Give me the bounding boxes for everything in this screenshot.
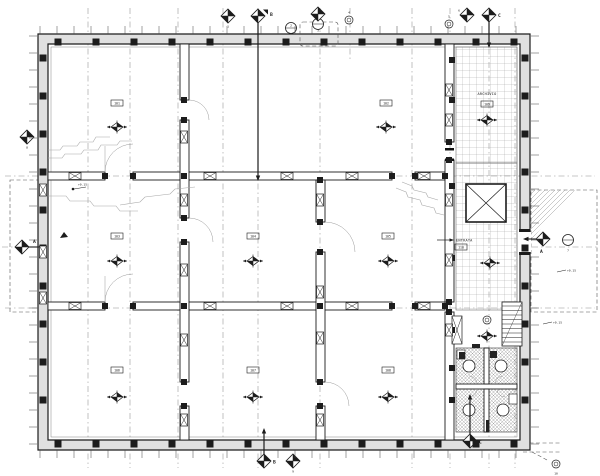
wall-cap [181, 303, 187, 309]
pilaster [131, 441, 138, 448]
level-marker-icon [107, 255, 127, 268]
pilaster [283, 441, 290, 448]
pilaster [397, 39, 404, 46]
wall-cap [446, 157, 452, 163]
wall-cap [181, 215, 187, 221]
wall-cap [442, 173, 448, 179]
grid-bubble-icon [345, 16, 353, 24]
pilaster [40, 93, 47, 100]
floor-plan-drawing: 101 102 103 104 105 106 107 108 109 110 … [0, 0, 600, 476]
pilaster [359, 39, 366, 46]
pilaster [522, 131, 529, 138]
interior-walls [48, 44, 454, 440]
room-number: 104 [250, 235, 256, 239]
pilaster [40, 55, 47, 62]
pilaster [511, 39, 518, 46]
pilaster [321, 39, 328, 46]
jamb [519, 229, 530, 232]
section-flag-icon [263, 10, 268, 15]
wall-cap [446, 309, 452, 315]
wall-cap [130, 303, 136, 309]
pilaster [435, 39, 442, 46]
pilaster [55, 39, 62, 46]
section-bubble-icon [15, 240, 29, 254]
wall-cap [181, 117, 187, 123]
pilaster [511, 441, 518, 448]
grid-bubble-label: 6 [458, 9, 460, 13]
leader-dot [72, 188, 75, 191]
spot-level: +0.15 [78, 183, 87, 187]
level-marker-icon [376, 121, 396, 134]
grid-bubble-label: 7 [567, 249, 569, 253]
bath-partition [456, 384, 517, 389]
section-letter: C [498, 13, 501, 19]
pilaster [93, 441, 100, 448]
grid-bubble-label: 10 [554, 472, 558, 476]
entry-arrow: ENTRATA [437, 238, 473, 242]
pilaster [245, 39, 252, 46]
pilaster [522, 283, 529, 290]
pilaster [40, 207, 47, 214]
dark-fixture [490, 351, 497, 358]
pilaster [522, 321, 529, 328]
pilaster [321, 441, 328, 448]
grid-bubble-icon [552, 460, 560, 468]
door-swing-wedge [60, 232, 68, 238]
wc-fixture [463, 404, 475, 416]
pilaster [207, 441, 214, 448]
pilaster [93, 39, 100, 46]
wall-end-caps [102, 57, 455, 409]
pilaster [522, 359, 529, 366]
wall-cap [449, 365, 455, 371]
pilaster [169, 441, 176, 448]
wall-cap [317, 249, 323, 255]
pilaster [473, 441, 480, 448]
grid-bubble-label: 9 [292, 470, 294, 474]
section-bubble-icon [251, 9, 265, 23]
pilaster [40, 359, 47, 366]
pilaster [40, 283, 47, 290]
room-number: 108 [385, 369, 391, 373]
wall-cap [102, 173, 108, 179]
wall-cap [181, 403, 187, 409]
section-bubble-icon [257, 454, 271, 468]
wall-cap [317, 219, 323, 225]
terrace-hatch [531, 190, 575, 240]
grid-bubble-icon [460, 8, 474, 22]
entry-label: ENTRATA [456, 239, 473, 243]
grid-bubble-label: 8 [26, 146, 28, 150]
wall-cap [102, 303, 108, 309]
jamb [519, 252, 530, 255]
wall-cap [317, 379, 323, 385]
pilaster [40, 169, 47, 176]
wc-fixture [495, 360, 507, 372]
wc-fixture [463, 360, 475, 372]
grid-bubble-icon [311, 7, 325, 21]
room-number: 109 [484, 103, 490, 107]
pilaster [40, 397, 47, 404]
pilaster [40, 321, 47, 328]
room-number: 101 [114, 102, 120, 106]
dark-fixture [459, 352, 465, 359]
floor-drain-icon [483, 316, 491, 324]
room-number: 110 [458, 246, 464, 250]
wall-cap [181, 97, 187, 103]
wall-cap [446, 299, 452, 305]
pilaster [522, 55, 529, 62]
spot-level: +0.15 [567, 269, 576, 273]
level-marker-icon [243, 255, 263, 268]
room-number: 102 [383, 102, 389, 106]
room-number: 107 [250, 369, 256, 373]
pilaster [522, 93, 529, 100]
wall-cap [130, 173, 136, 179]
pilaster [435, 441, 442, 448]
grid-bubble-label: 2 [290, 24, 292, 28]
pilaster [522, 207, 529, 214]
grid-bubble-label: 1 [227, 25, 229, 29]
wall-cap [449, 57, 455, 63]
floor-plan-sheet: 101 102 103 104 105 106 107 108 109 110 … [0, 0, 600, 476]
bath-door [472, 344, 480, 348]
wall-cap [317, 303, 323, 309]
room-number: 103 [114, 235, 120, 239]
room-label: 101 102 103 104 105 106 107 108 109 110 [111, 100, 493, 373]
pilaster [40, 131, 47, 138]
room-annotations: 101 102 103 104 105 106 107 108 109 110 … [107, 92, 500, 404]
grid-bubble-icon [563, 235, 574, 246]
wall-cap [449, 183, 455, 189]
level-marker-icon [477, 330, 497, 343]
wall-cap [181, 239, 187, 245]
pilaster [245, 441, 252, 448]
wall-opening-symbols [40, 84, 453, 426]
grid-bubble-icon [20, 130, 34, 144]
wall-cap [446, 139, 452, 145]
wall-cap [412, 173, 418, 179]
door-jamb [445, 148, 454, 151]
grid-bubble-icon [286, 454, 300, 468]
wall-cap [389, 173, 395, 179]
room-number: 106 [114, 369, 120, 373]
level-marker-icon [378, 391, 398, 404]
grid-bubble-label: 5 [448, 15, 450, 19]
pilaster [207, 39, 214, 46]
section-bubble-icon [482, 8, 496, 22]
wall-cap [449, 397, 455, 403]
wall-cap [317, 403, 323, 409]
level-marker-icon [378, 255, 398, 268]
grid-bubble-icon [445, 20, 453, 28]
pilaster [473, 39, 480, 46]
pilaster [522, 169, 529, 176]
wc-fixture [497, 404, 509, 416]
bath-door [486, 420, 489, 432]
section-letter: B [270, 12, 273, 18]
wall-cap [412, 303, 418, 309]
archive-room-name: ARCHIVIO [478, 92, 497, 96]
wall-cap [181, 173, 187, 179]
level-marker-icon [243, 391, 263, 404]
pilaster [55, 441, 62, 448]
pilaster [522, 245, 529, 252]
spot-level: +0.15 [553, 321, 562, 325]
pilaster [359, 441, 366, 448]
section-bubble-icon [536, 232, 550, 246]
wall-cap [389, 303, 395, 309]
section-letter: B [273, 460, 276, 466]
bath-partition [484, 348, 489, 384]
pilaster [283, 39, 290, 46]
sink-fixture [509, 394, 517, 404]
section-letter: A [540, 249, 543, 255]
grid-bubble-label: 4 [348, 11, 350, 15]
pilaster [397, 441, 404, 448]
pilaster [169, 39, 176, 46]
wall-cap [317, 177, 323, 183]
room-number: 105 [385, 235, 391, 239]
level-marker-icon [107, 121, 127, 134]
wall-cap [449, 97, 455, 103]
grid-bubble-label: 3 [317, 29, 319, 33]
pilaster [131, 39, 138, 46]
pilaster [522, 397, 529, 404]
wall-cap [181, 379, 187, 385]
level-marker-icon [107, 391, 127, 404]
